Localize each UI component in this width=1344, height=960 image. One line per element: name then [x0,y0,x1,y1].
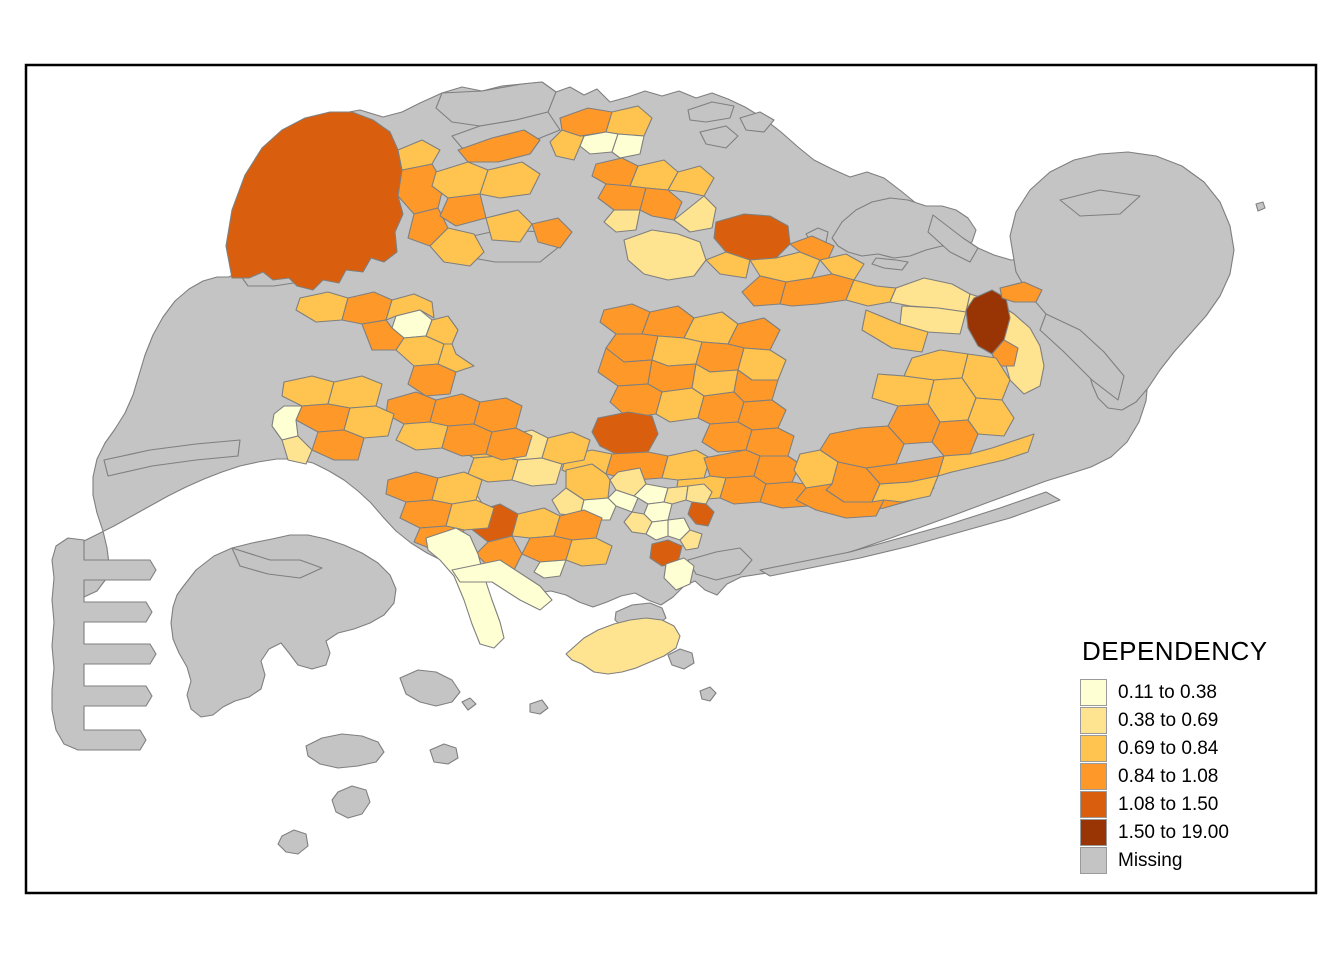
legend-swatch [1080,791,1107,818]
legend-row: 0.84 to 1.08 [1080,763,1268,791]
legend-row: 0.69 to 0.84 [1080,735,1268,763]
map-legend: DEPENDENCY 0.11 to 0.380.38 to 0.690.69 … [1080,636,1268,875]
legend-swatch [1080,819,1107,846]
legend-label: 0.38 to 0.69 [1107,710,1218,732]
subzone [446,500,494,530]
subzone [720,476,766,504]
legend-row: 1.50 to 19.00 [1080,819,1268,847]
legend-label: 0.69 to 0.84 [1107,738,1218,760]
legend-row: 0.11 to 0.38 [1080,679,1268,707]
legend-label: 0.11 to 0.38 [1107,682,1217,704]
subzone [566,538,612,566]
legend-row: Missing [1080,847,1268,875]
subzone [872,374,934,406]
subzone [932,420,978,456]
subzone [612,134,644,158]
subzone [474,398,522,432]
legend-swatch [1080,679,1107,706]
subzone [656,388,704,422]
legend-title: DEPENDENCY [1082,636,1268,667]
legend-swatch [1080,707,1107,734]
legend-row: 0.38 to 0.69 [1080,707,1268,735]
legend-row: 1.08 to 1.50 [1080,791,1268,819]
legend-label: 1.08 to 1.50 [1107,794,1218,816]
subzone [698,392,744,424]
legend-swatch [1080,847,1107,874]
legend-swatch [1080,735,1107,762]
subzone [652,336,702,366]
legend-label: 0.84 to 1.08 [1107,766,1218,788]
legend-label: 1.50 to 19.00 [1107,822,1229,844]
legend-label: Missing [1107,850,1182,872]
subzone [754,456,800,484]
subzone [746,428,794,456]
legend-swatch [1080,763,1107,790]
subzone [486,428,532,460]
legend-items: 0.11 to 0.380.38 to 0.690.69 to 0.840.84… [1080,679,1268,875]
